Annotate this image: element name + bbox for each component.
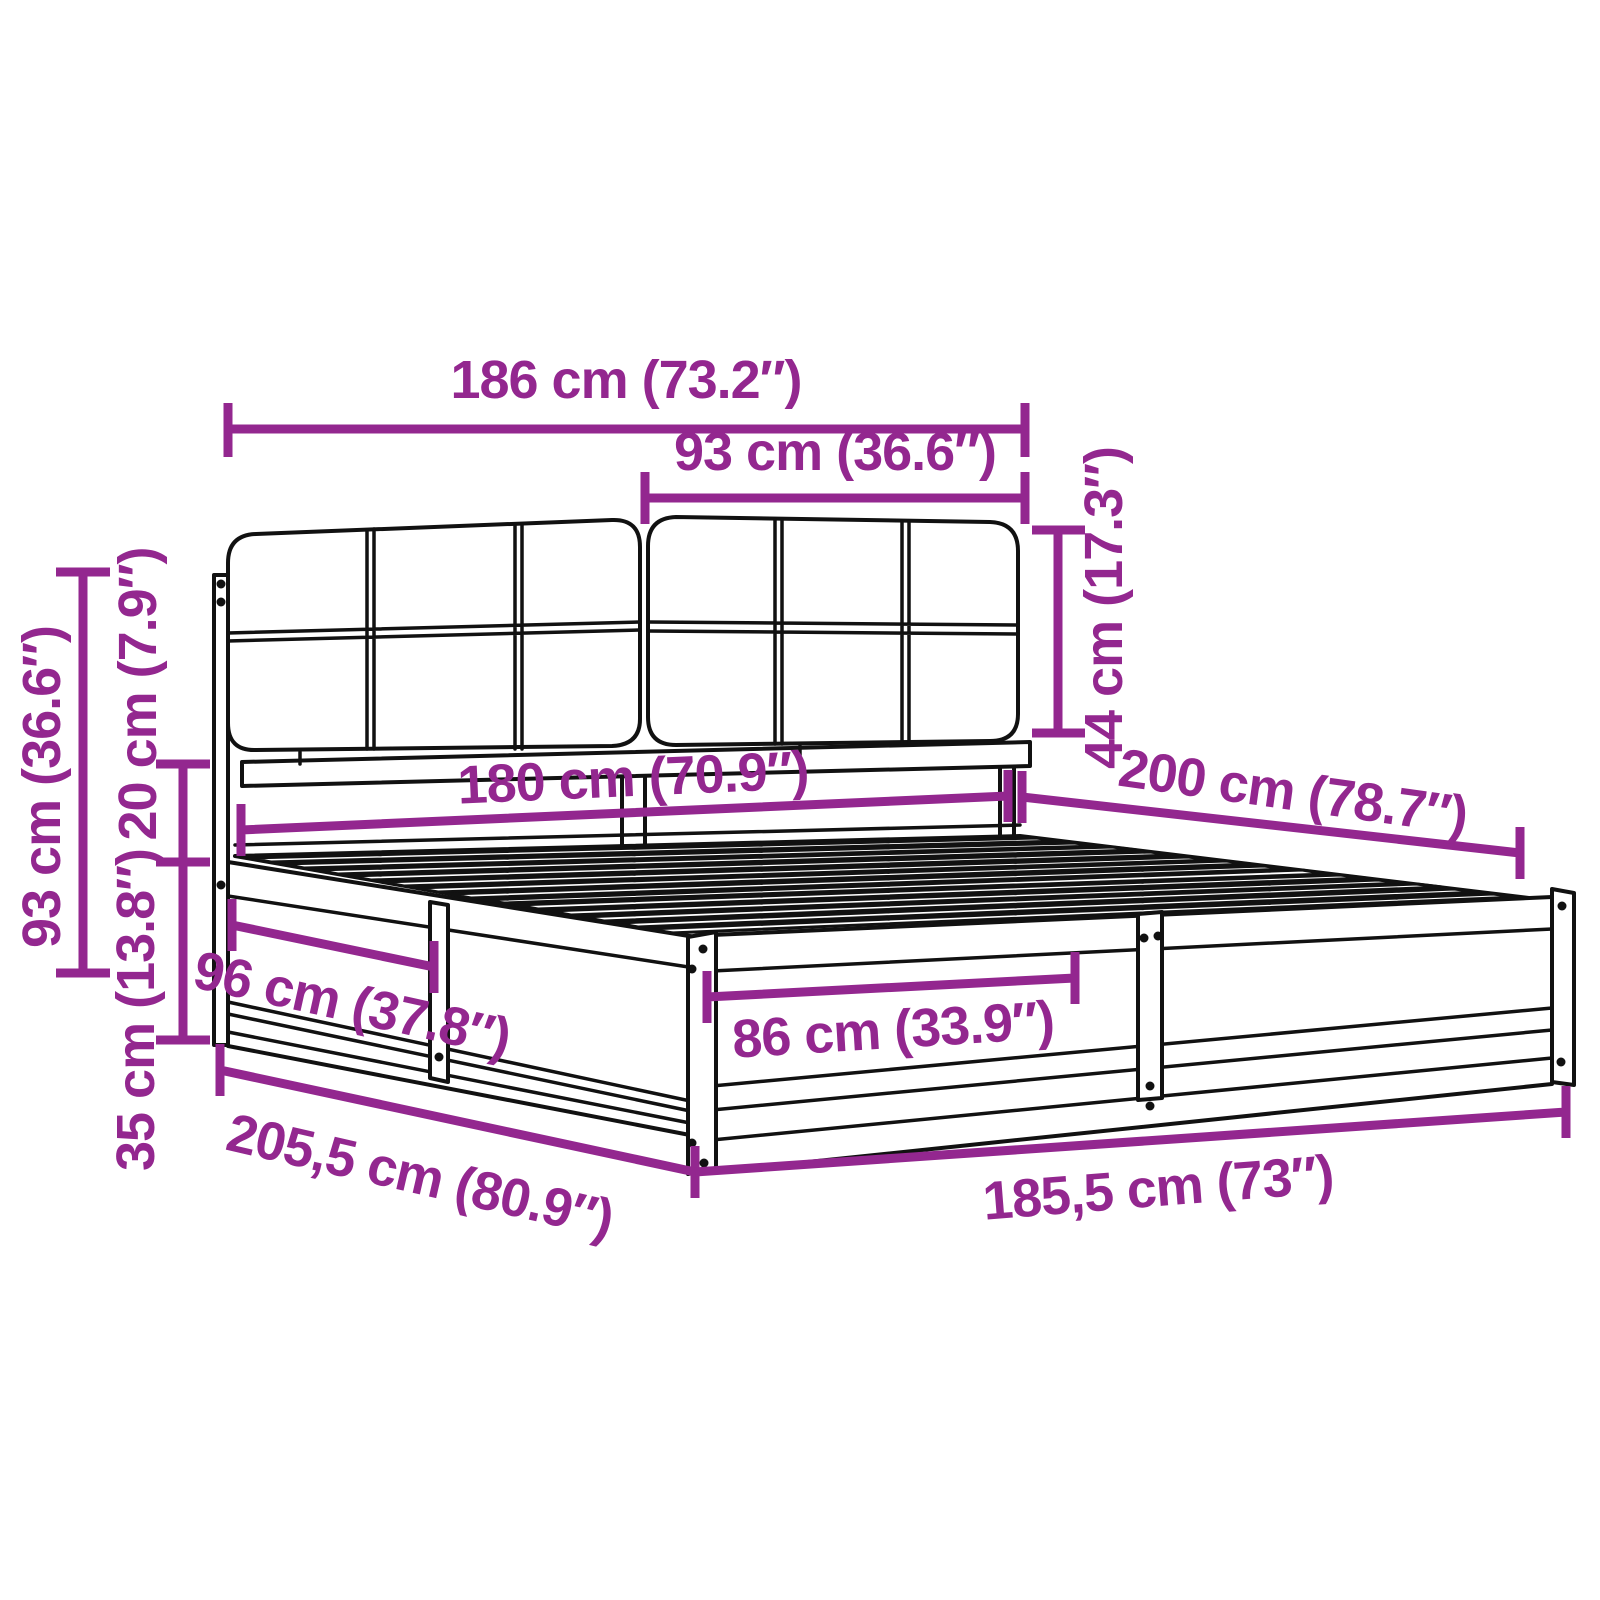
post-screw: [1140, 934, 1149, 943]
post-screw: [1557, 1058, 1566, 1067]
dim-base-frame-height-label: 35 cm (13.8″): [106, 849, 166, 1171]
post-screw: [1154, 932, 1163, 941]
dim-headboard-section-width: 93 cm (36.6″): [645, 422, 1025, 524]
post-screw: [700, 1159, 709, 1168]
dim-cushion-to-base-gap-label: 20 cm (7.9″): [108, 547, 168, 840]
dim-headboard-section-width-label: 93 cm (36.6″): [674, 422, 996, 482]
dim-frame-total-length-label: 205,5 cm (80.9″): [221, 1102, 619, 1249]
dim-base-frame-height: 35 cm (13.8″): [106, 849, 210, 1171]
dim-cushion-to-base-gap: 20 cm (7.9″): [108, 547, 210, 862]
bed-frame-dimension-diagram: 186 cm (73.2″) 93 cm (36.6″) 44 cm (17.3…: [0, 0, 1600, 1600]
dim-headboard-cushion-height-label: 44 cm (17.3″): [1074, 447, 1134, 769]
post-screw: [217, 580, 226, 589]
dim-frame-total-width-label: 185,5 cm (73″): [981, 1144, 1336, 1231]
post-screw: [1558, 902, 1567, 911]
dim-headboard-total-height: 93 cm (36.6″): [12, 572, 110, 973]
post-screw: [1146, 1102, 1155, 1111]
dim-headboard-total-height-label: 93 cm (36.6″): [12, 626, 72, 948]
dimension-diagram-canvas: 186 cm (73.2″) 93 cm (36.6″) 44 cm (17.3…: [0, 0, 1600, 1600]
right-corner-post: [1552, 889, 1574, 1085]
dim-headboard-width-label: 186 cm (73.2″): [450, 350, 801, 410]
post-screw: [217, 881, 226, 890]
post-screw: [1146, 1082, 1155, 1091]
post-screw: [217, 598, 226, 607]
dim-headboard-cushion-height: 44 cm (17.3″): [1032, 447, 1134, 769]
post-screw: [688, 965, 697, 974]
post-screw: [699, 945, 708, 954]
